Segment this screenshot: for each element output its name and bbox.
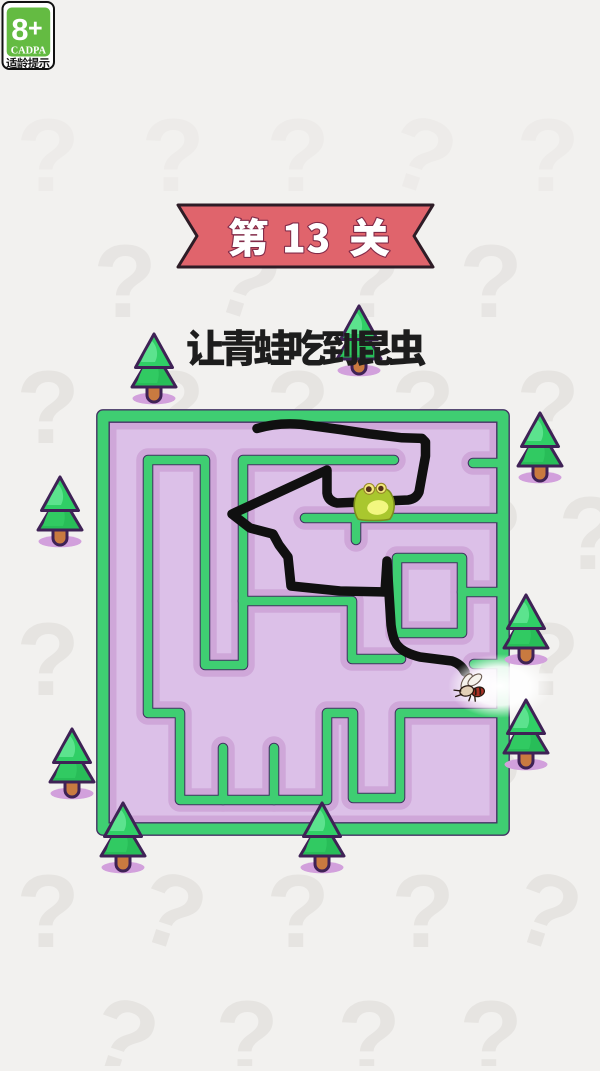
svg-text:?: ? <box>16 350 80 466</box>
svg-text:?: ? <box>459 224 523 340</box>
svg-text:?: ? <box>16 602 80 718</box>
svg-text:?: ? <box>459 980 523 1066</box>
svg-text:?: ? <box>76 973 172 1066</box>
svg-text:?: ? <box>215 980 279 1066</box>
svg-text:?: ? <box>391 854 455 970</box>
svg-text:?: ? <box>558 476 600 592</box>
svg-text:?: ? <box>93 224 157 340</box>
svg-text:?: ? <box>266 98 330 214</box>
svg-text:?: ? <box>516 98 580 214</box>
svg-text:+: + <box>28 15 43 43</box>
svg-text:8: 8 <box>11 12 28 47</box>
svg-text:?: ? <box>16 98 80 214</box>
svg-text:?: ? <box>141 98 205 214</box>
svg-text:?: ? <box>374 91 470 221</box>
svg-text:?: ? <box>337 980 401 1066</box>
svg-text:?: ? <box>499 847 595 977</box>
svg-text:CADPA: CADPA <box>11 46 47 57</box>
svg-text:?: ? <box>16 854 80 970</box>
